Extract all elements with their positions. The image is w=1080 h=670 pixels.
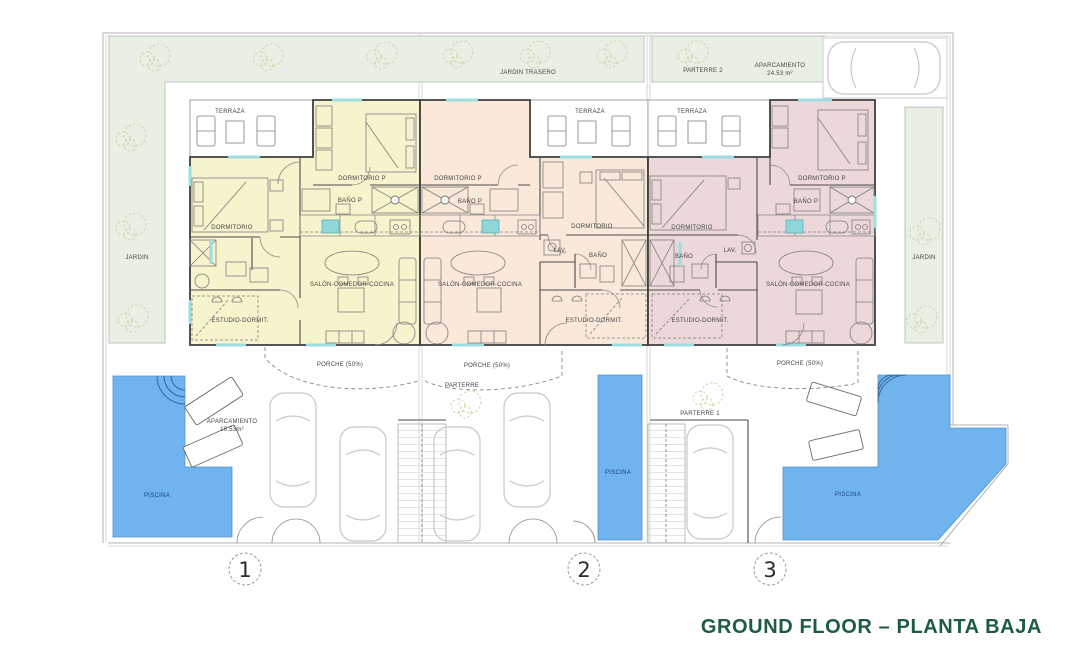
unit-2-lav-label: LAV. (553, 248, 566, 254)
pool-1-label: PISCINA (144, 493, 170, 499)
porch-3-boundary (727, 348, 858, 389)
rear-parking-area: 24.53 m² (767, 71, 793, 77)
unit-1-estudio-label: ESTUDIO-DORMIT. (211, 318, 268, 324)
parterre-1-label: PARTERRE 1 (680, 411, 720, 417)
unit-2-dormitorio-label: DORMITORIO (571, 224, 612, 230)
unit-3-number: 3 (763, 558, 776, 582)
floor-plan-sheet: JARDIN TRASERO PARTERRE 2 JARDIN JARDIN … (0, 0, 1080, 670)
pool-unit-2 (598, 375, 642, 540)
right-garden-label: JARDIN (912, 255, 935, 261)
parterre-2-bed (652, 36, 824, 82)
unit-3-bano-p-label: BAÑO P (794, 198, 818, 205)
porch-2-label: PORCHE (50%) (464, 363, 510, 369)
unit-2-bano-p-label: BAÑO P (458, 198, 482, 205)
unit-3-estudio-label: ESTUDIO-DORMIT. (671, 318, 728, 324)
unit-2-terraza-label: TERRAZA (575, 109, 605, 115)
unit-2-number: 2 (577, 558, 590, 582)
unit-3-terrace (648, 100, 770, 157)
pool-3-label: PISCINA (835, 492, 861, 498)
unit-3-salon-label: SALÓN-COMEDOR-COCINA (766, 281, 850, 288)
angled-cars (183, 377, 864, 468)
right-garden-strip (905, 107, 943, 343)
rear-parking-label: APARCAMIENTO (755, 63, 806, 69)
porch-3-label: PORCHE (50%) (777, 361, 823, 367)
unit-1-dormitorio-p-label: DORMITORIO P (338, 176, 386, 182)
porch-1-label: PORCHE (50%) (317, 362, 363, 368)
left-garden-label: JARDIN (125, 255, 148, 261)
unit-2-dormitorio-p-label: DORMITORIO P (434, 176, 482, 182)
building-unit-3: TERRAZA DORMITORIO P BAÑO P DORMITORIO L… (648, 100, 875, 345)
unit-3-dormitorio-p-label: DORMITORIO P (798, 176, 846, 182)
unit-1-terrace (190, 100, 313, 157)
unit-3-dormitorio-label: DORMITORIO (671, 225, 712, 231)
sheet-title: GROUND FLOOR – PLANTA BAJA (701, 616, 1042, 638)
building-unit-1: TERRAZA DORMITORIO P BAÑO P DORMITORIO S… (190, 100, 420, 345)
unit-1-dormitorio-label: DORMITORIO (211, 225, 252, 231)
rear-garden-label: JARDIN TRASERO (500, 70, 556, 76)
unit-3-bano-label: BAÑO (675, 253, 693, 260)
unit-3-terraza-label: TERRAZA (677, 109, 707, 115)
unit-3-lav-label: LAV. (723, 248, 736, 254)
unit-markers: 1 2 3 (229, 553, 786, 585)
parterre-label: PARTERRE (445, 383, 479, 389)
parterre-2-label: PARTERRE 2 (683, 68, 723, 74)
unit-2-bano-label: BAÑO (589, 252, 607, 259)
unit-1-number: 1 (238, 558, 251, 582)
floor-plan-drawing: JARDIN TRASERO PARTERRE 2 JARDIN JARDIN … (0, 0, 1080, 670)
building-unit-2: TERRAZA DORMITORIO P BAÑO P DORMITORIO L… (420, 100, 648, 345)
unit-2-salon-label: SALÓN-COMEDOR-COCINA (438, 281, 522, 288)
unit-1-bano-p-label: BAÑO P (338, 197, 362, 204)
unit-1-terraza-label: TERRAZA (215, 109, 245, 115)
pools: PISCINA PISCINA PISCINA (113, 375, 1006, 540)
unit-2-estudio-label: ESTUDIO-DORMIT. (565, 318, 622, 324)
front-yards: PORCHE (50%) PORCHE (50%) PORCHE (50%) P… (183, 347, 864, 543)
parking-1-label: APARCAMIENTO (207, 419, 258, 425)
unit-1-salon-label: SALÓN-COMEDOR-COCINA (310, 281, 394, 288)
parking-1-area: 16.53m² (220, 427, 244, 433)
pool-2-label: PISCINA (605, 470, 631, 476)
